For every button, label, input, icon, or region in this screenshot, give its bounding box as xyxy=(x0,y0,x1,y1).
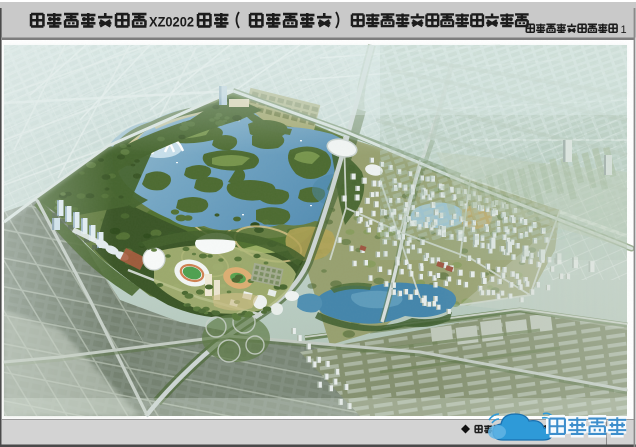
svg-text:XZ0202: XZ0202 xyxy=(149,14,194,30)
svg-text:1: 1 xyxy=(621,24,627,36)
